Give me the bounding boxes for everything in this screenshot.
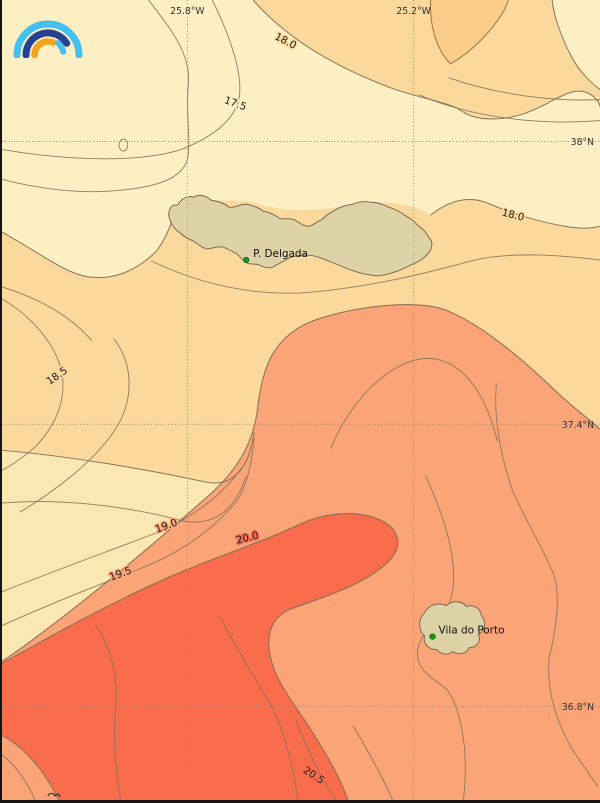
parallel-label: 37.4°N: [562, 420, 594, 431]
city-dot: [244, 257, 249, 262]
parallel-label: 38°N: [571, 137, 594, 148]
parallel-label: 36.8°N: [562, 702, 594, 713]
meridian-label: 25.8°W: [170, 6, 204, 17]
logo-arcs: [17, 24, 79, 55]
temperature-fill-regions: [2, 0, 600, 800]
meridian-label: 25.2°W: [396, 6, 430, 17]
rainbow-arcs-logo: [8, 8, 90, 58]
sea-surface-temperature-contour-map: 25.8°W25.2°W38°N37.4°N36.8°N 18.017.518.…: [0, 0, 600, 803]
city-label: P. Delgada: [253, 248, 308, 260]
city-label: Vila do Porto: [439, 625, 505, 637]
city-dot: [430, 634, 435, 639]
logo-inner-left-arc: [35, 41, 54, 55]
logo-inner-right-arc: [58, 43, 63, 52]
contour-map-canvas: 25.8°W25.2°W38°N37.4°N36.8°N 18.017.518.…: [2, 0, 600, 800]
